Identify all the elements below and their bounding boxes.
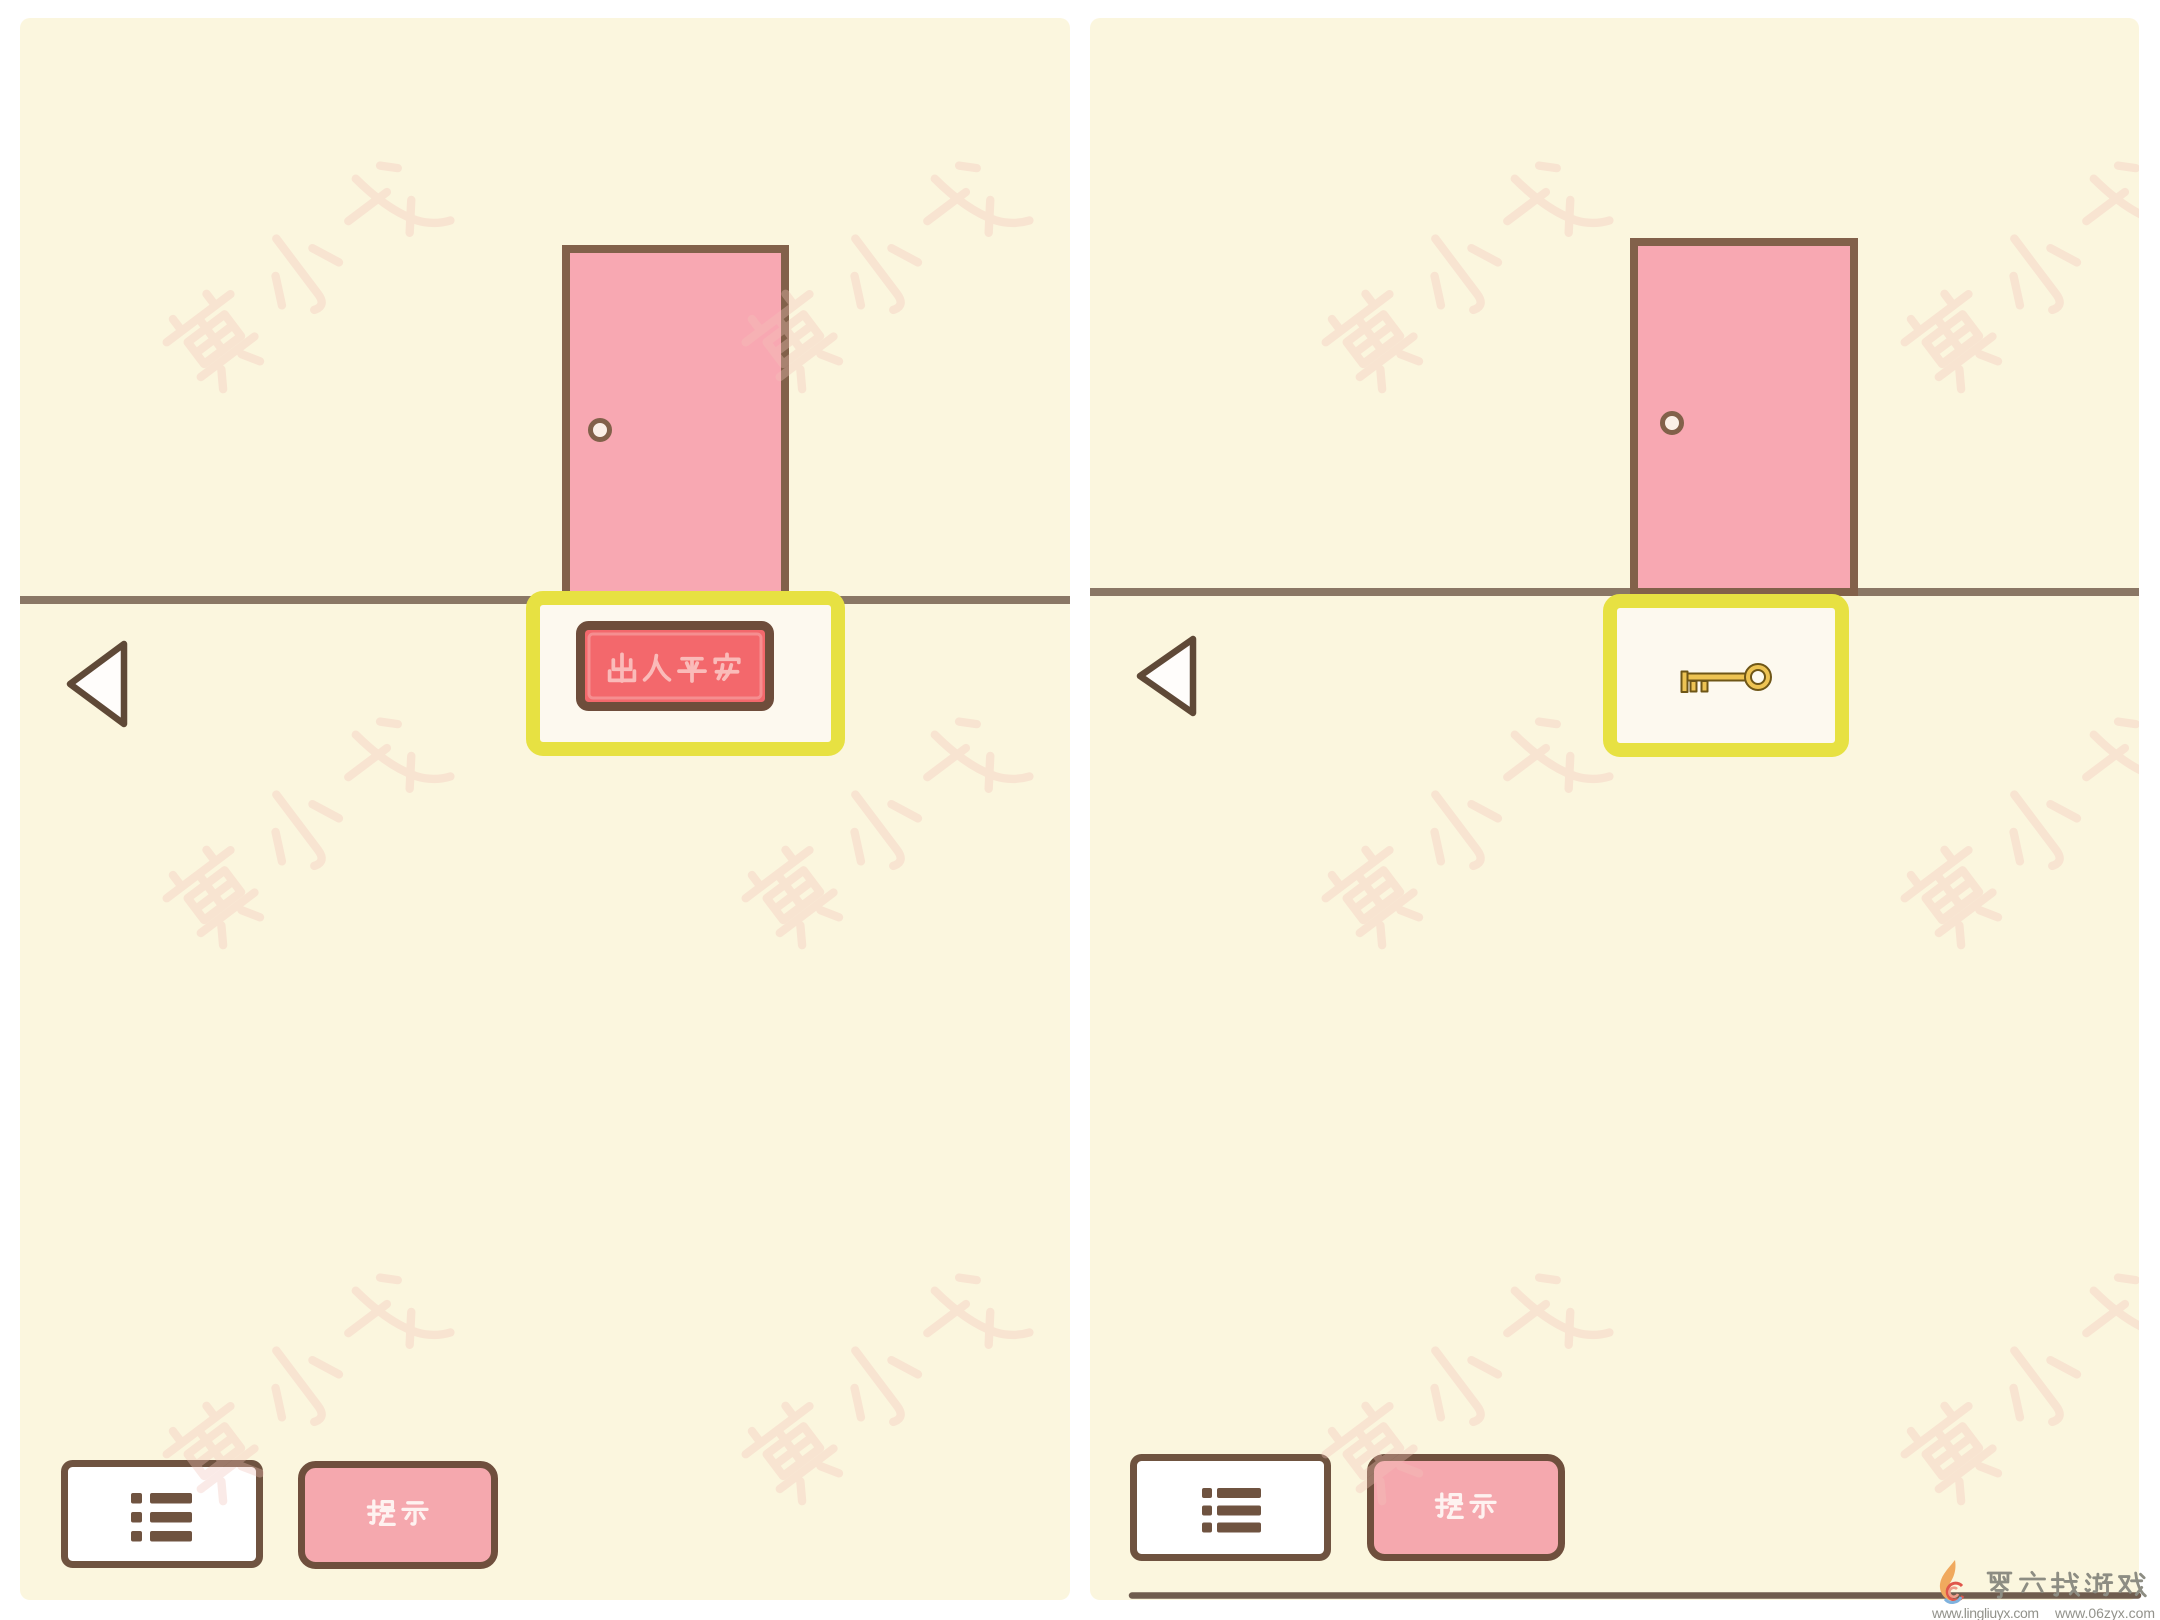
svg-text:www.06zyx.com: www.06zyx.com	[2054, 1605, 2155, 1620]
svg-text:www.lingliuyx.com: www.lingliuyx.com	[1931, 1605, 2039, 1620]
